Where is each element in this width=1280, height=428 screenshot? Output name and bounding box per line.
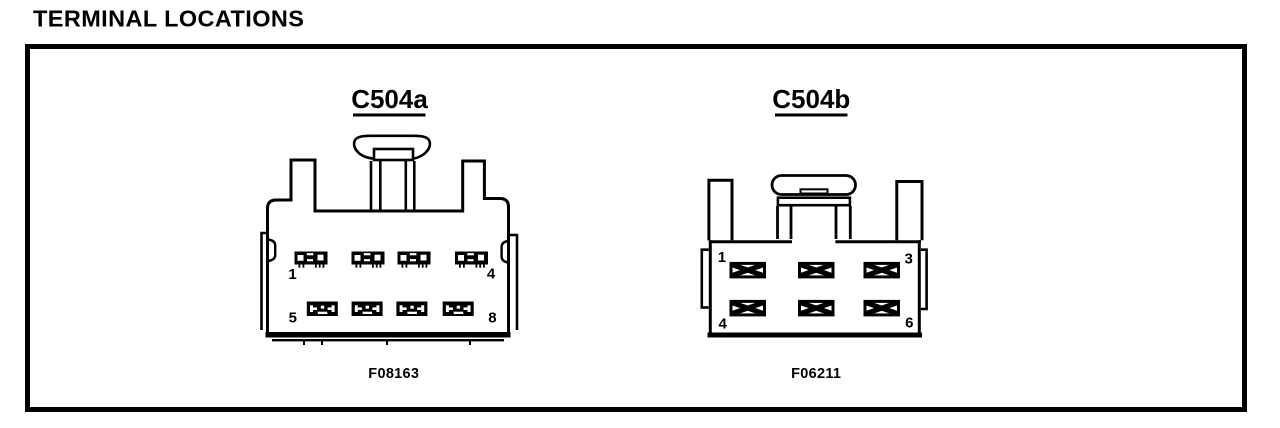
svg-text:5: 5 — [289, 310, 297, 327]
svg-text:C504a: C504a — [351, 84, 428, 114]
svg-text:1: 1 — [288, 266, 296, 283]
svg-text:6: 6 — [905, 315, 913, 332]
svg-text:8: 8 — [488, 310, 496, 327]
svg-text:3: 3 — [905, 251, 913, 268]
svg-text:4: 4 — [719, 316, 728, 333]
svg-text:4: 4 — [487, 266, 496, 283]
svg-text:F08163: F08163 — [368, 366, 419, 382]
svg-text:TERMINAL LOCATIONS: TERMINAL LOCATIONS — [33, 6, 304, 32]
svg-text:1: 1 — [718, 249, 726, 266]
svg-text:C504b: C504b — [772, 84, 850, 114]
svg-text:F06211: F06211 — [791, 366, 841, 382]
